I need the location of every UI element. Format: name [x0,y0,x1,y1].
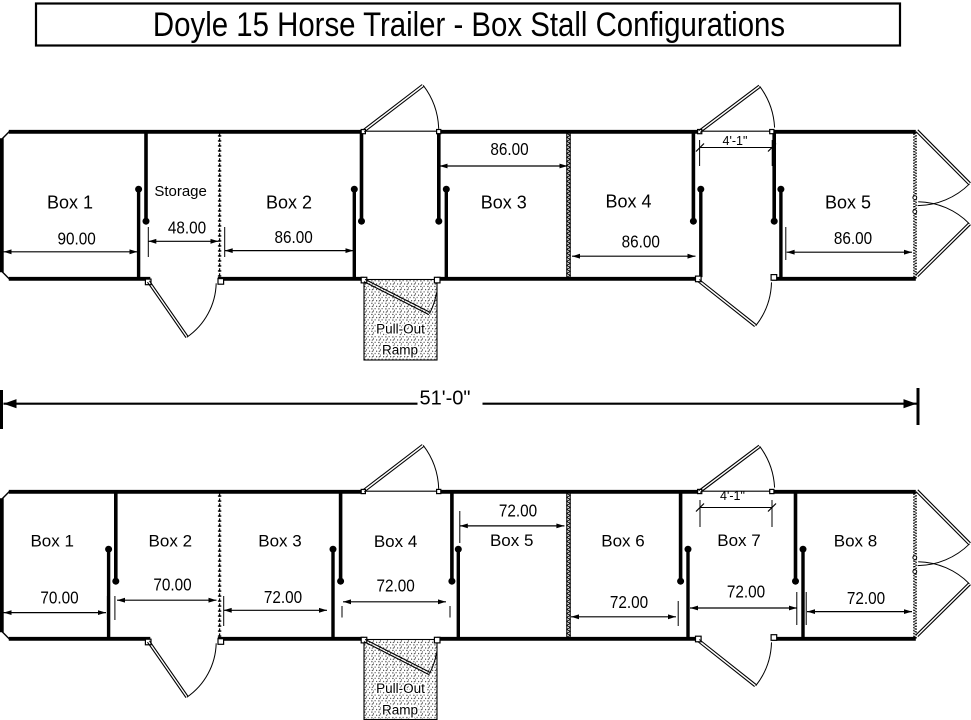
svg-text:Box 2: Box 2 [149,532,192,551]
svg-text:Pull-Out: Pull-Out [376,681,425,696]
svg-text:Box 6: Box 6 [601,532,644,551]
svg-text:48.00: 48.00 [168,217,206,237]
svg-text:Box 5: Box 5 [490,531,533,550]
svg-text:86.00: 86.00 [622,231,660,251]
svg-text:Box 1: Box 1 [30,532,73,551]
svg-text:Box 3: Box 3 [481,193,527,213]
svg-text:Box 3: Box 3 [258,532,301,551]
svg-text:72.00: 72.00 [499,500,537,520]
svg-text:Box 4: Box 4 [605,192,651,212]
svg-text:Box 8: Box 8 [834,532,877,551]
svg-text:Box 5: Box 5 [825,193,871,213]
svg-text:72.00: 72.00 [727,581,765,601]
svg-text:72.00: 72.00 [376,575,414,595]
svg-text:72.00: 72.00 [264,587,302,607]
svg-text:4'-1": 4'-1" [723,134,748,148]
svg-text:Box 4: Box 4 [374,532,417,551]
svg-text:Ramp: Ramp [382,703,418,718]
svg-text:Box 7: Box 7 [717,531,760,550]
svg-text:86.00: 86.00 [490,139,528,159]
svg-text:86.00: 86.00 [834,228,872,248]
svg-text:70.00: 70.00 [40,587,78,607]
svg-text:Ramp: Ramp [382,343,418,358]
svg-text:Box 1: Box 1 [47,193,93,213]
svg-text:72.00: 72.00 [610,592,648,612]
svg-text:90.00: 90.00 [57,228,95,248]
svg-text:51'-0": 51'-0" [420,387,471,409]
svg-text:86.00: 86.00 [274,227,312,247]
svg-text:Pull-Out: Pull-Out [376,321,425,336]
svg-text:Box 2: Box 2 [266,193,312,213]
svg-text:70.00: 70.00 [153,575,191,595]
svg-text:Storage: Storage [154,183,207,200]
svg-text:72.00: 72.00 [847,588,885,608]
svg-text:Doyle 15 Horse Trailer - Box S: Doyle 15 Horse Trailer - Box Stall Confi… [153,5,785,44]
